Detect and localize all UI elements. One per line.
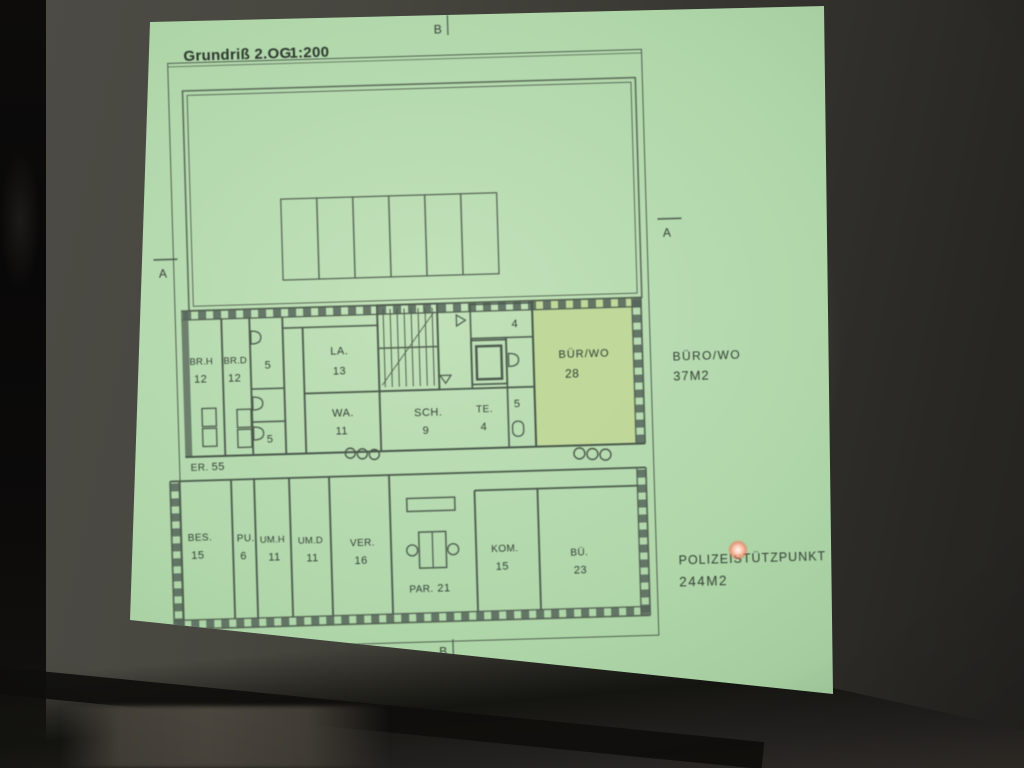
bench-rect [407, 497, 455, 511]
hatched-wall-right-lower [637, 467, 650, 615]
room-label: PAR. [409, 584, 434, 596]
parking-furniture [405, 497, 459, 569]
room-number: 4 [511, 318, 518, 330]
curtain-below-screen [60, 706, 390, 768]
room-label: VER. [350, 538, 375, 550]
room-label: BES. [188, 532, 213, 544]
shadow-shape [0, 150, 40, 290]
room-number: 12 [194, 373, 208, 385]
room-label: WA. [332, 407, 354, 420]
room-number: 12 [228, 372, 242, 384]
room-label: BÜ. [570, 546, 588, 559]
section-marker-top-b: B [433, 15, 448, 36]
wall-left-middle [181, 311, 192, 457]
room-number: 9 [422, 425, 429, 437]
bathroom-fixtures [200, 323, 524, 448]
room-number: 15 [191, 550, 205, 562]
room-label: KOM. [491, 543, 518, 555]
upper-building-outline [182, 78, 641, 311]
section-marker-right-a: A [657, 218, 682, 240]
door-triangle-right-icon [456, 315, 465, 326]
floor-plan-drawing: Grundriß 2.OG 1:200 B B A [130, 0, 849, 680]
room-label: BR.D [223, 355, 247, 367]
room-label: LA. [330, 345, 348, 358]
room-number: 21 [437, 582, 451, 594]
room-label: PU. [237, 533, 255, 545]
marker-a-left-line [153, 259, 177, 260]
room-label: UM.D [298, 535, 323, 547]
lower-room-labels: BES. 15 PU. 6 UM.H 11 UM.D 11 VER. 16 PA… [188, 521, 590, 602]
door-triangle-down-icon [440, 375, 451, 383]
room-number: 15 [496, 561, 510, 573]
wall-top-lower [170, 467, 646, 481]
annotation-polizei: POLIZEISTÜTZPUNKT 244M2 [678, 549, 827, 589]
middle-room-strip: BR.H 12 BR.D 12 5 5 LA. 13 WA. 11 SCH. 9… [181, 298, 645, 458]
room-number: 23 [574, 564, 588, 576]
annotation-police-area: 244M2 [679, 573, 728, 589]
room-label: TE. [476, 404, 493, 415]
marker-b-top-label: B [434, 22, 443, 36]
title-text: Grundriß 2.OG [183, 45, 292, 65]
marker-a-right-label: A [663, 226, 672, 240]
room-number: 5 [267, 433, 274, 445]
chair-circle [407, 545, 418, 556]
skylight-row [281, 193, 499, 280]
room-label: UM.H [260, 534, 285, 546]
staircase [377, 304, 440, 392]
room-number: 16 [354, 555, 368, 567]
room-number: 11 [268, 551, 281, 563]
marker-a-left-label: A [159, 267, 168, 281]
toilet-icon [512, 421, 523, 436]
room-label: SCH. [414, 406, 443, 419]
laser-pointer-dot [728, 540, 748, 560]
room-number: 5 [264, 360, 271, 372]
hatched-wall-left-lower [170, 481, 183, 629]
lower-interior-walls [231, 468, 641, 619]
highlight-room-fill [532, 298, 636, 447]
annotation-police-label: POLIZEISTÜTZPUNKT [678, 549, 826, 567]
toilet-icon [253, 397, 263, 410]
room-number: 6 [240, 550, 247, 562]
plan-title: Grundriß 2.OG 1:200 [183, 44, 329, 65]
elevator [471, 340, 507, 385]
room-number: 28 [565, 366, 580, 380]
corridor-number: 55 [211, 461, 225, 473]
wall-bottom-middle [185, 443, 645, 457]
room-number: 4 [480, 421, 487, 433]
room-label: BÜR/WO [558, 347, 610, 361]
lower-room-strip: BES. 15 PU. 6 UM.H 11 UM.D 11 VER. 16 PA… [170, 467, 650, 629]
room-number: 11 [306, 552, 319, 564]
washbasin-icon [508, 353, 518, 366]
hatched-wall-bottom-lower [174, 606, 650, 629]
marker-a-right-line [657, 218, 681, 219]
chair-circle [448, 544, 459, 555]
room-number: 13 [333, 365, 347, 377]
annotation-office-label: BÜRO/WO [672, 348, 741, 364]
photo-scene: Grundriß 2.OG 1:200 B B A [0, 0, 1024, 768]
annotation-office-area: 37M2 [673, 368, 710, 384]
marker-b-top-line [447, 15, 448, 35]
room-label: BR.H [189, 356, 213, 368]
annotation-buero: BÜRO/WO 37M2 [672, 348, 741, 384]
toilet-icon [251, 331, 261, 344]
room-number: 5 [514, 398, 521, 410]
room-number: 11 [335, 425, 348, 437]
toilet-icon [253, 427, 263, 440]
corridor-label: ER. [191, 462, 209, 474]
